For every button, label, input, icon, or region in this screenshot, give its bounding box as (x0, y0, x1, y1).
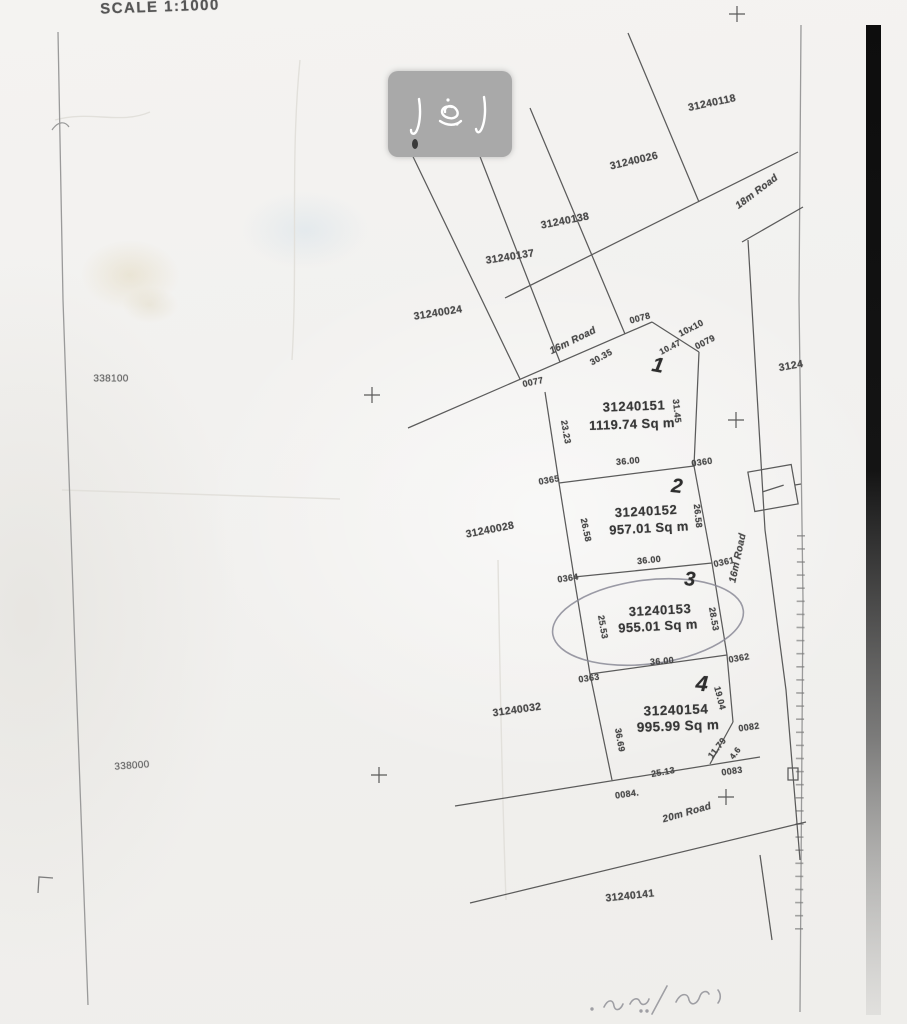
paper-creases (55, 60, 506, 900)
plot1-area: 1119.74 Sq m (589, 415, 675, 433)
stamp-handwriting (388, 71, 512, 157)
northing-label-top: 338100 (93, 374, 128, 385)
scan-edge-band (866, 25, 881, 1015)
handwritten-note (591, 986, 720, 1014)
parcel-boundaries (405, 33, 806, 940)
pencil-mark (52, 123, 69, 130)
plot2-number: 2 (670, 475, 684, 499)
dim-36-00-3: 36.00 (650, 655, 675, 667)
plot4-parcel: 31240154 (643, 701, 708, 718)
gray-stamp-box (388, 71, 512, 157)
plot4-number: 4 (695, 671, 709, 698)
scanned-survey-sheet: SCALE 1:1000 338100 338000 31240118 3124… (0, 0, 907, 1024)
dim-36-00-1: 36.00 (616, 455, 641, 467)
plot4-area: 995.99 Sq m (637, 717, 720, 735)
plot3-number: 3 (683, 568, 696, 592)
plot1-parcel: 31240151 (602, 397, 665, 414)
